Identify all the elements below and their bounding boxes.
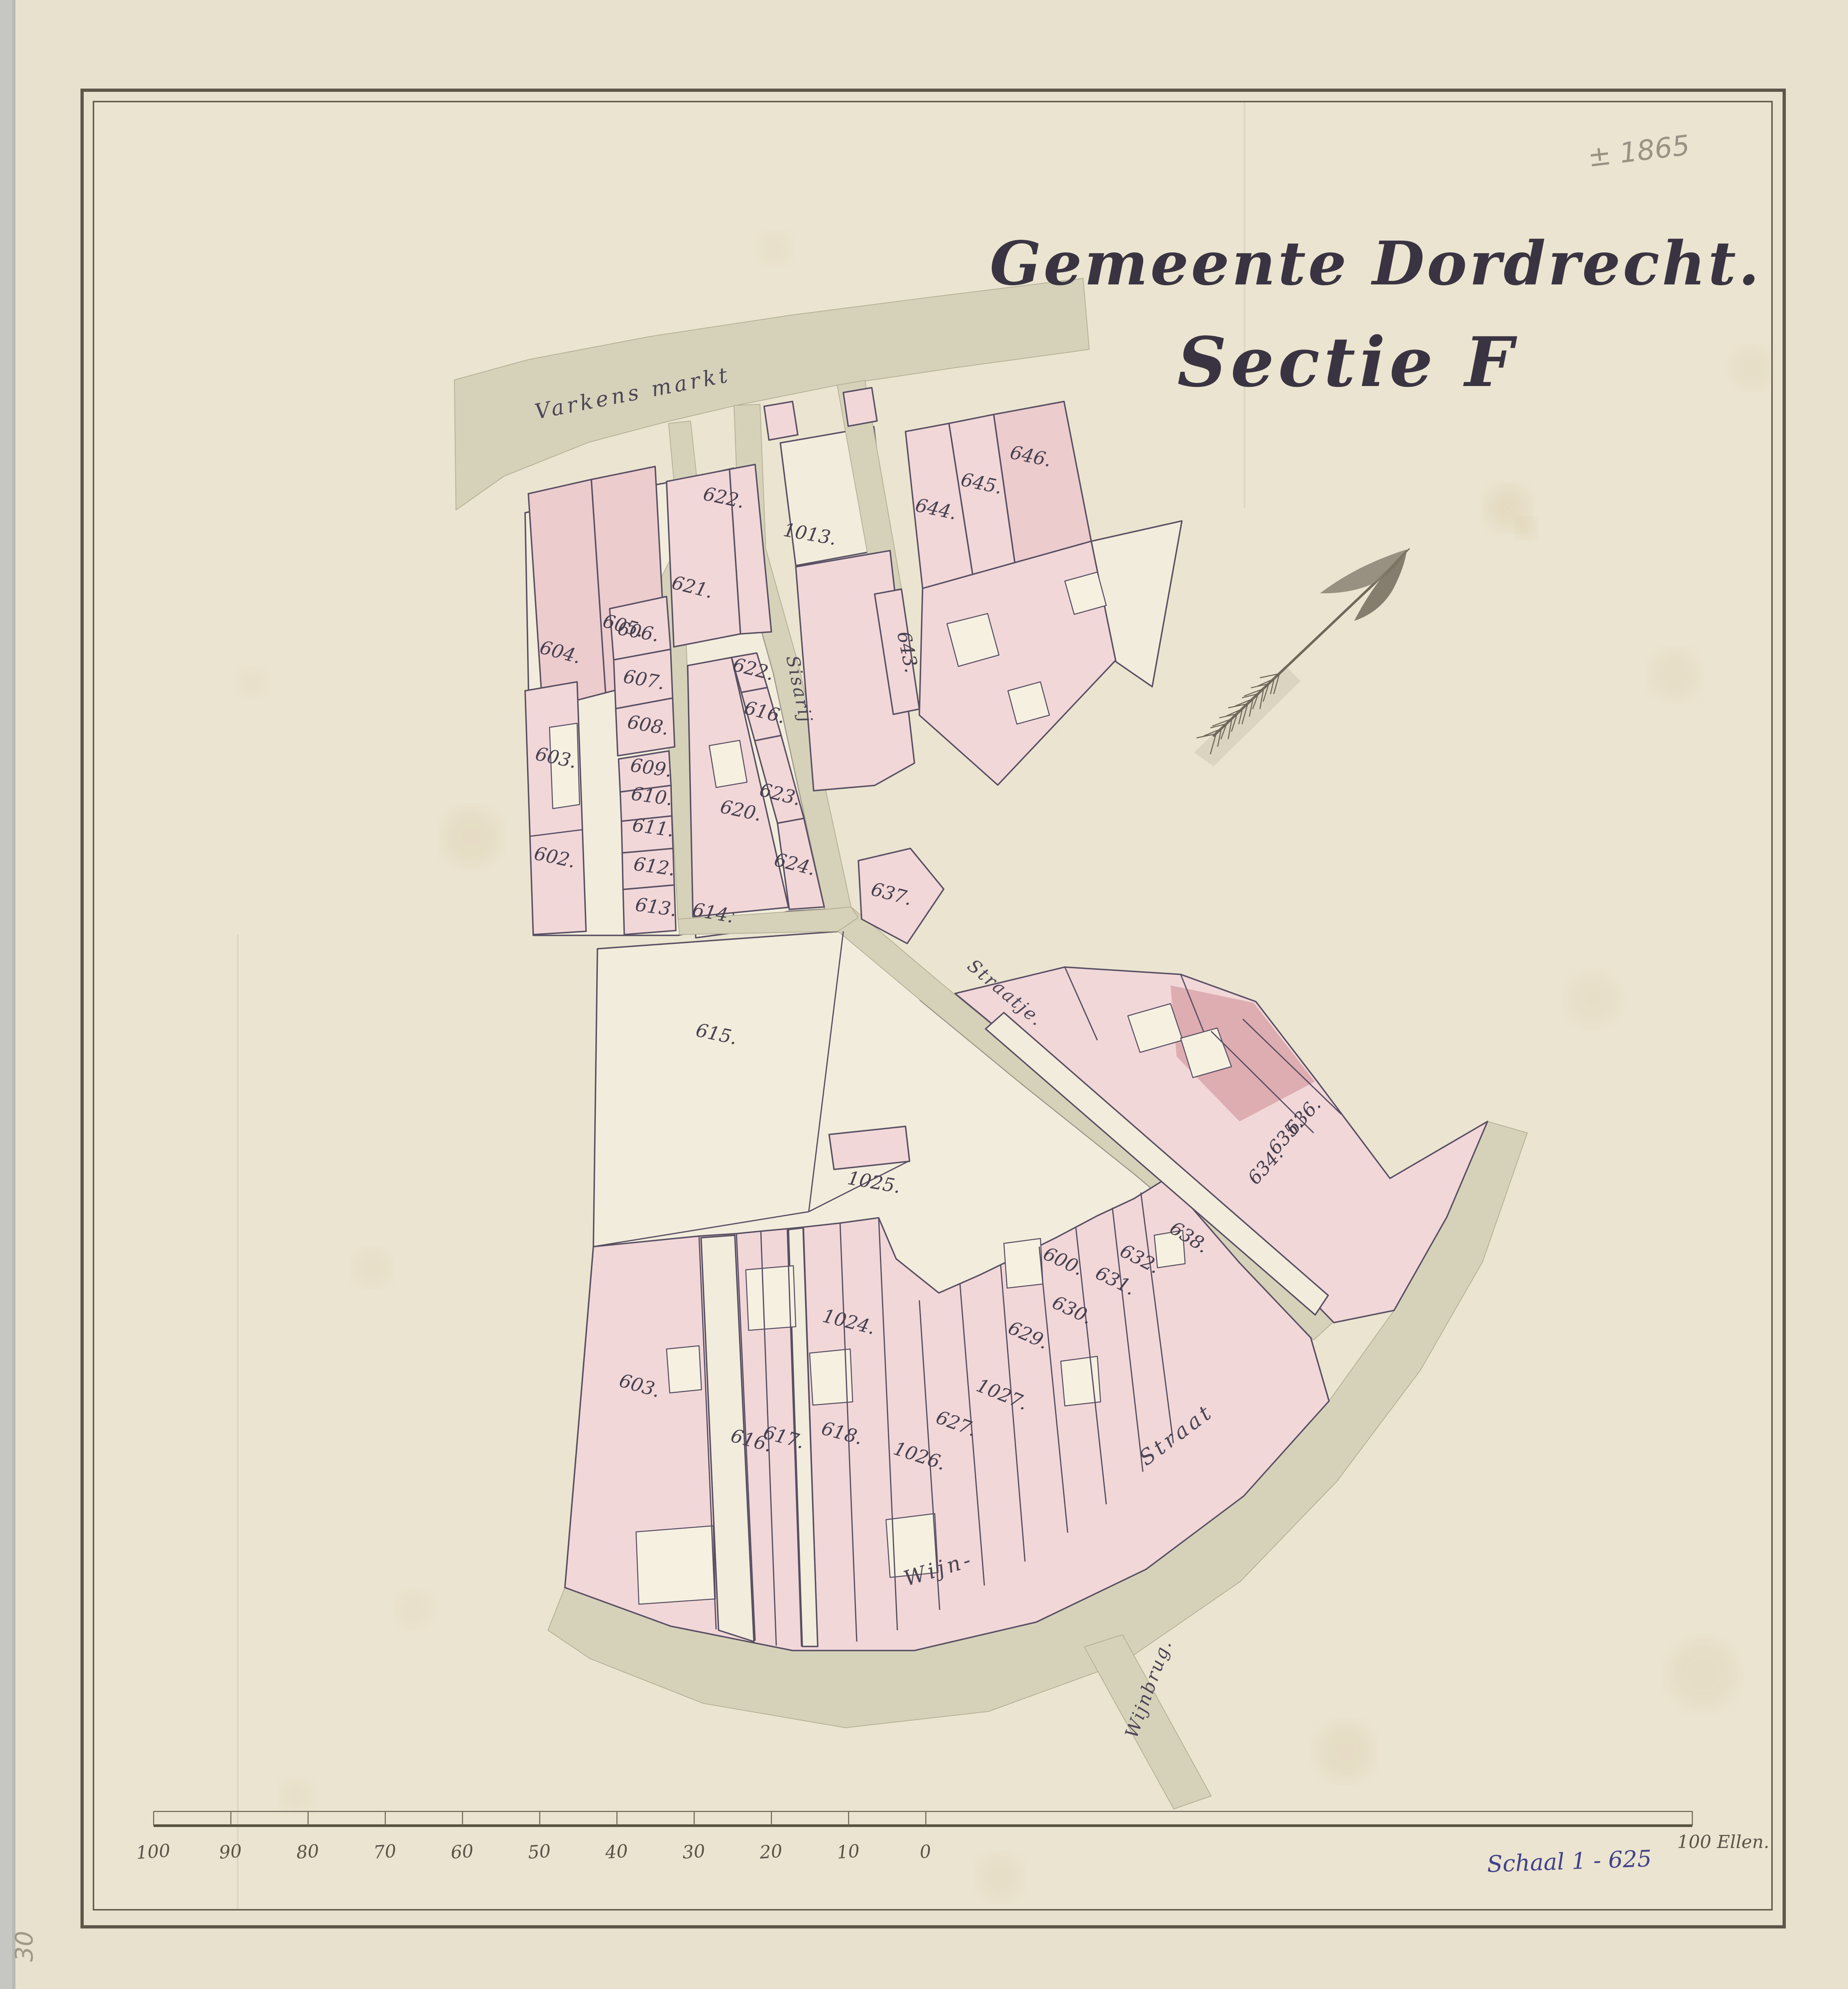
scalebar-unit-label: 100 Ellen. [1677,1832,1770,1852]
scalebar-label-30: 30 [682,1841,706,1863]
scalebar-label-60: 60 [450,1841,474,1863]
stain-3 [1516,518,1536,538]
scalebar-label-20: 20 [758,1841,783,1863]
court-620 [709,740,747,787]
scalebar-label-80: 80 [295,1841,319,1863]
map-canvas: 604.605.621.622.1013.644.645.646.643.606… [0,0,1848,1989]
map-subtitle: Sectie F [1177,322,1518,402]
parcel-1025-sliver [829,1126,910,1169]
scalebar-label-0: 0 [919,1841,932,1863]
court-fan-w [667,1346,701,1393]
scalebar-label-40: 40 [604,1841,628,1863]
cadastral-map-sheet: 604.605.621.622.1013.644.645.646.643.606… [0,0,1848,1989]
stain-4 [1650,650,1699,699]
scan-edge-left-line [12,0,15,1989]
stain-7 [1731,347,1772,388]
scalebar-label-10: 10 [836,1841,860,1863]
scalebar-label-70: 70 [373,1841,397,1863]
parcel-small-b [843,388,877,426]
stain-11 [758,232,790,265]
court-603 [636,1526,715,1604]
court-629 [1004,1239,1043,1288]
stain-8 [977,1855,1022,1900]
stain-12 [1668,1640,1737,1709]
map-title: Gemeente Dordrecht. [990,228,1761,299]
stain-5 [1317,1723,1374,1780]
stain-6 [354,1249,390,1286]
scalebar-label-100: 100 [135,1840,171,1863]
stain-15 [396,1591,433,1627]
scan-edge-left [0,0,12,1989]
parcel-small-a [764,401,798,440]
pencil-corner-note: 30 [10,1931,39,1962]
scalebar-label-50: 50 [527,1841,551,1863]
stain-10 [1567,973,1620,1026]
stain-0 [443,809,500,865]
stain-9 [280,1780,313,1812]
scalebar-label-90: 90 [218,1841,242,1863]
stain-13 [238,668,266,697]
